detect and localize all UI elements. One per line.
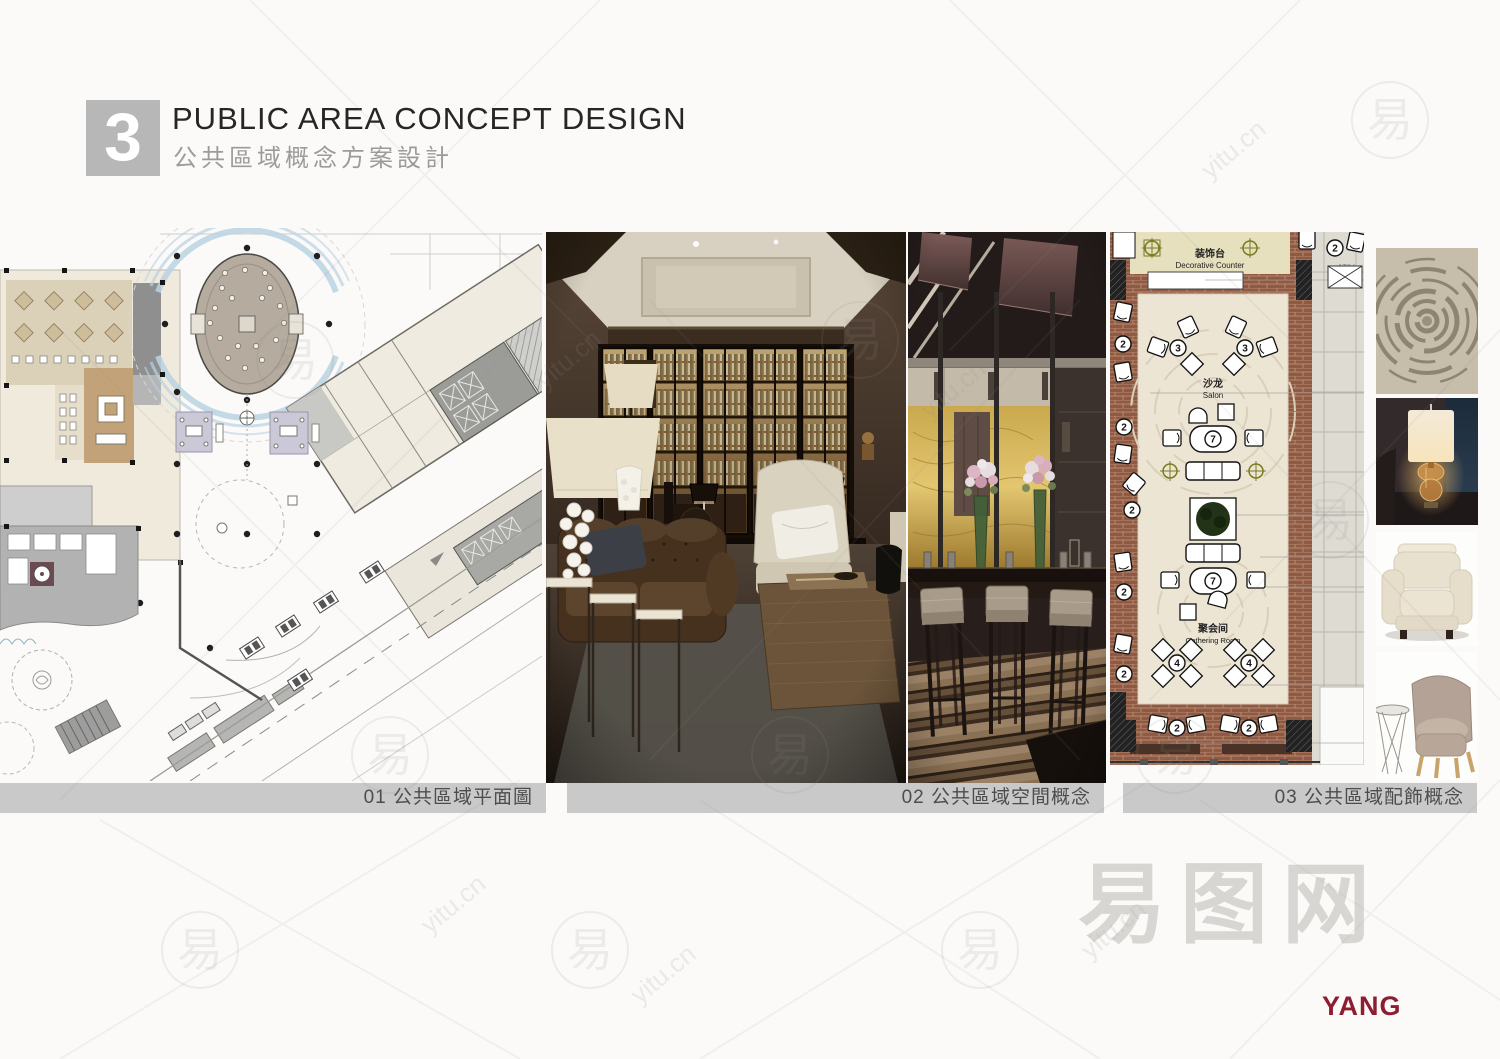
section-number-box: 3 <box>86 100 160 176</box>
svg-text:yitu.cn: yitu.cn <box>1075 893 1152 964</box>
caption-bar-01: 01 公共區域平面圖 <box>0 783 546 813</box>
svg-text:易: 易 <box>1367 94 1413 146</box>
svg-text:2: 2 <box>1129 506 1135 517</box>
svg-text:2: 2 <box>1120 340 1126 351</box>
yang-logo: YANG <box>1322 991 1402 1022</box>
decorative-counter-label-cn: 装饰台 <box>1194 247 1225 260</box>
svg-text:2: 2 <box>1174 724 1180 735</box>
salon-label-en: Salon <box>1203 391 1223 400</box>
svg-text:yitu.cn: yitu.cn <box>625 938 702 1009</box>
decor-plan-03: 装饰台 Decorative Counter ATIV <box>1110 232 1364 765</box>
svg-text:2: 2 <box>1246 724 1252 735</box>
lamp-photo <box>1376 398 1478 525</box>
page-subtitle: 公共區域概念方案設計 <box>173 138 453 173</box>
svg-text:4: 4 <box>1174 659 1180 670</box>
tub-chair-photo <box>1376 652 1478 780</box>
svg-text:yitu.cn: yitu.cn <box>1195 113 1272 184</box>
tree-planter <box>1190 498 1236 540</box>
bar-photo <box>908 232 1106 783</box>
decorative-counter-label-en: Decorative Counter <box>1176 261 1245 270</box>
caption-bar-02: 02 公共區域空間概念 <box>567 783 1104 813</box>
lounge-photo <box>546 232 906 783</box>
svg-text:易: 易 <box>957 924 1003 976</box>
section-number: 3 <box>104 99 142 175</box>
svg-text:易: 易 <box>567 924 613 976</box>
tower-wing-lower <box>385 451 542 638</box>
svg-text:易: 易 <box>177 924 223 976</box>
svg-text:4: 4 <box>1246 659 1252 670</box>
svg-text:2: 2 <box>1332 244 1338 255</box>
page-title: PUBLIC AREA CONCEPT DESIGN <box>172 101 687 137</box>
armchair-photo <box>1376 532 1478 646</box>
salon-label-cn: 沙龙 <box>1203 377 1223 390</box>
svg-text:2: 2 <box>1121 670 1127 681</box>
svg-text:yitu.cn: yitu.cn <box>415 868 492 939</box>
gathering-label-cn: 聚会间 <box>1197 622 1228 635</box>
carpet-swatch <box>1376 248 1478 394</box>
svg-text:3: 3 <box>1175 344 1181 355</box>
watermark-brand: 易图网 <box>1078 855 1384 954</box>
svg-text:7: 7 <box>1210 435 1216 446</box>
concept-design-slide: 3 PUBLIC AREA CONCEPT DESIGN 公共區域概念方案設計 <box>0 0 1500 1059</box>
svg-text:3: 3 <box>1242 344 1248 355</box>
svg-text:2: 2 <box>1121 423 1127 434</box>
stairs <box>55 700 120 754</box>
svg-text:7: 7 <box>1210 577 1216 588</box>
caption-bar-03: 03 公共區域配飾概念 <box>1123 783 1477 813</box>
svg-text:2: 2 <box>1121 588 1127 599</box>
floor-plan-01 <box>0 228 542 781</box>
garden <box>0 639 72 774</box>
